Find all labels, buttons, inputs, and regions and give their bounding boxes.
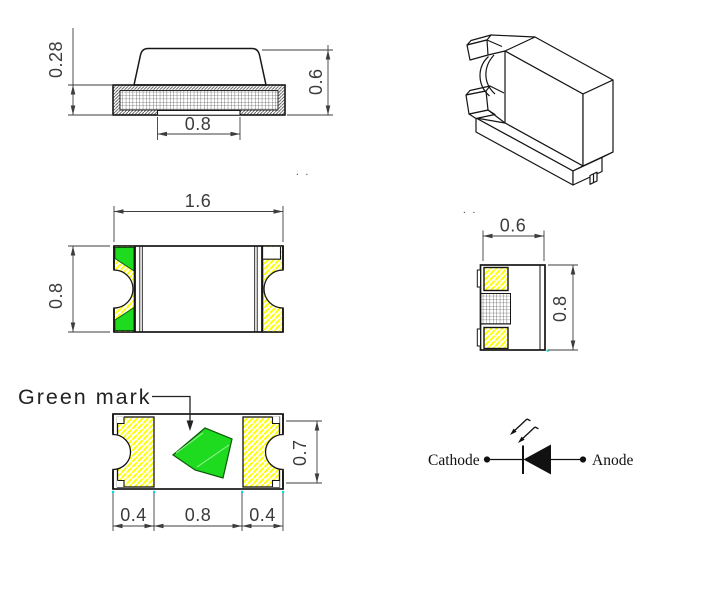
technical-drawing-canvas: 0.28 0.6 0.8	[0, 0, 707, 594]
led-datasheet-drawing-page: 0.28 0.6 0.8	[0, 0, 707, 594]
dim-total-height-value: 0.6	[306, 68, 326, 95]
stray-dots-right: . .	[463, 204, 477, 216]
dim-center-gap-value: 0.8	[185, 505, 212, 525]
dim-bottom-height-value: 0.7	[290, 439, 310, 466]
dim-width-value: 0.8	[46, 282, 66, 309]
circuit-symbol: Cathode Anode	[428, 419, 633, 475]
dim-right-pad-value: 0.4	[249, 505, 276, 525]
emission-arrows	[510, 419, 539, 443]
dim-end-width-value: 0.6	[500, 216, 527, 236]
end-view-pad-top	[484, 268, 508, 291]
end-view-tab-top	[477, 270, 480, 287]
bottom-view: Green mark 0.4 0.8 0.4 0.7	[18, 385, 322, 531]
stray-dots-left: . .	[296, 166, 310, 178]
side-view: 0.28 0.6 0.8	[46, 28, 333, 140]
dim-left-pad-value: 0.4	[120, 505, 147, 525]
anode-index-notch	[263, 247, 280, 259]
side-view-body	[134, 49, 266, 86]
anode-terminal-dot	[580, 456, 586, 462]
top-view: 1.6 0.8	[46, 191, 305, 332]
dim-notch-width-value: 0.8	[185, 114, 212, 134]
dim-base-height-value: 0.28	[46, 41, 66, 78]
dim-length	[114, 206, 283, 242]
dim-end-height-value: 0.8	[550, 295, 570, 322]
cathode-label: Cathode	[428, 452, 480, 469]
dim-base-height	[68, 28, 113, 115]
end-view-substrate	[481, 294, 511, 325]
anode-label: Anode	[592, 452, 633, 469]
dim-length-value: 1.6	[185, 191, 212, 211]
end-view-pad-bottom	[484, 328, 508, 349]
iso-right-face	[583, 80, 613, 166]
isometric-view	[466, 35, 613, 185]
green-mark-label: Green mark	[18, 385, 152, 409]
diode-triangle	[524, 445, 552, 475]
end-view: 0.6 0.8	[477, 216, 578, 352]
end-view-tab-bottom	[477, 329, 480, 346]
cathode-terminal-dot	[484, 456, 490, 462]
